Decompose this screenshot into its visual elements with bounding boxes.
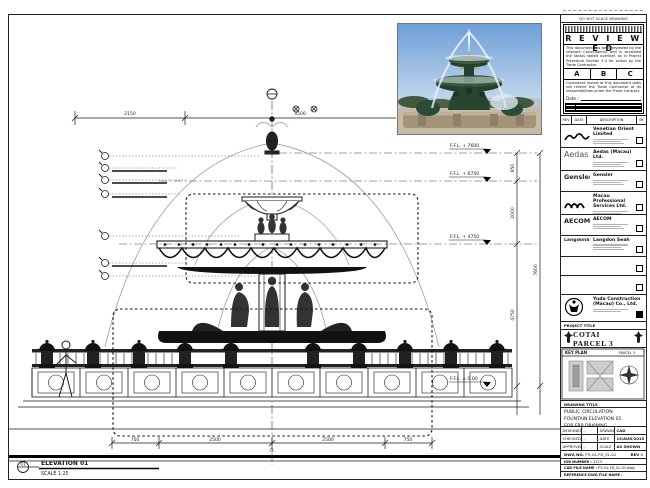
svg-text:2500: 2500 (209, 437, 221, 443)
svg-text:PARCEL 3: PARCEL 3 (619, 351, 635, 355)
cad-file-value: P3-GL-FD_EL-01.dwg (598, 466, 634, 470)
svg-text:F.F.L. + 6750: F.F.L. + 6750 (450, 171, 479, 177)
checked-label: CHECKED (561, 435, 582, 442)
stamp-date-row: Date : (564, 95, 643, 102)
view-title: 01 ELEVATION 01 SCALE 1:25 (18, 460, 160, 477)
svg-text:750: 750 (404, 437, 413, 443)
keynote-callouts (99, 150, 261, 280)
venetian-orient-logo-icon (564, 127, 590, 146)
date-col: DATE (572, 116, 587, 124)
cad-file-label: CAD FILE NAME : (564, 466, 597, 470)
svg-text:2150: 2150 (124, 111, 136, 117)
company-entry-client: Venetian Orient Limited (561, 125, 646, 148)
company-checkbox[interactable] (636, 225, 643, 232)
reference-dwg-row: REFERENCE DWG FILE NAME : (561, 472, 646, 477)
drawing-sheet: 2150 4500 2150 (0, 0, 650, 488)
reference-photo (397, 23, 542, 135)
company-checkbox[interactable] (636, 204, 643, 211)
yuda-construction-logo-icon (564, 297, 590, 321)
company-checkbox[interactable] (636, 246, 643, 253)
aecom-logo-icon: AECOM (564, 217, 590, 225)
reference-dwg-label: REFERENCE DWG FILE NAME : (564, 473, 623, 477)
company-checkbox[interactable] (636, 265, 643, 272)
fountain-base-band (158, 331, 386, 343)
company-entry-langdon-seah: LangdonSeah Langdon Seah (561, 236, 646, 257)
company-checkbox[interactable] (636, 311, 643, 318)
svg-text:F.F.L. ± 0.00: F.F.L. ± 0.00 (450, 376, 478, 382)
drawn-label: DRAWN (598, 427, 615, 434)
dwg-no-row: DWG NO. P3-GL-FD_EL-01 REV 0 (561, 451, 646, 459)
company-name: AECOM (593, 217, 643, 222)
fountain-photo-svg (398, 24, 541, 134)
drawing-title-line-1: PUBLIC CIRCULATION (564, 408, 643, 415)
scale-value: AS SHOWN (615, 443, 646, 450)
approved-value: - (582, 443, 598, 450)
svg-text:KEY PLAN: KEY PLAN (565, 350, 587, 355)
langdon-seah-logo-icon: LangdonSeah (564, 238, 590, 243)
date-label: DATE (598, 435, 615, 442)
company-checkbox[interactable] (636, 160, 643, 167)
company-checkbox[interactable] (636, 181, 643, 188)
svg-text:SCALE 1:25: SCALE 1:25 (41, 471, 69, 477)
rev-value: 0 (641, 452, 643, 457)
svg-text:F.F.L. + 4750: F.F.L. + 4750 (450, 234, 479, 240)
status-b[interactable]: B (591, 69, 618, 79)
mps-logo-icon (564, 194, 590, 213)
key-plan: KEY PLAN PARCEL 3 (561, 348, 646, 401)
stamp-date-line[interactable] (581, 96, 641, 101)
svg-text:CL: CL (269, 448, 275, 453)
right-dim-labels: 850 2000 4750 7600 (510, 164, 539, 321)
right-dimensions (514, 150, 543, 415)
rev-label: REV (631, 452, 640, 457)
drawing-title-line-2: FOUNTAIN ELEVATION 01 (564, 415, 643, 422)
designed-value: - (582, 427, 598, 434)
rev-col: REV (561, 116, 572, 124)
signature-fields: DESIGNED - DRAWN CAD CHECKED - DATE 13/A… (561, 427, 646, 451)
drawing-title-block: DRAWING TITLE PUBLIC CIRCULATION FOUNTAI… (561, 401, 646, 427)
svg-text:F.F.L. + 7600: F.F.L. + 7600 (450, 143, 479, 149)
svg-text:4500: 4500 (294, 111, 306, 117)
sheet-frame: 2150 4500 2150 (8, 14, 647, 480)
revision-header: REV DATE DESCRIPTION BY (561, 116, 646, 125)
svg-text:2500: 2500 (322, 437, 334, 443)
drawn-value: CAD (615, 427, 646, 434)
job-number-value: 3123 (593, 460, 602, 464)
company-name: Aedas (Macau) Ltd. (593, 150, 643, 160)
status-a[interactable]: A (564, 69, 591, 79)
svg-text:4750: 4750 (510, 309, 516, 321)
ground-heavy-line (9, 455, 561, 458)
project-title: COTAI PARCEL 3 (561, 330, 646, 348)
stamp-paragraph-1: This document has been reviewed by the r… (564, 45, 643, 68)
svg-text:ELEVATION 01: ELEVATION 01 (41, 460, 88, 467)
company-name: Langdon Seah (593, 238, 643, 243)
stamp-paragraph-2: Consultant review of this document does … (564, 80, 643, 95)
company-entry-mps: Macau Professional Services Ltd. (561, 192, 646, 215)
by-col: BY (637, 116, 646, 124)
project-emblem-right-icon (634, 329, 643, 348)
sheet-note: DO NOT SCALE DRAWING (561, 15, 646, 23)
company-entry-blank-1 (561, 257, 646, 276)
stamp-header-strip (565, 26, 642, 33)
dwg-no-label: DWG NO. (564, 452, 584, 457)
company-entry-aedas: Aedas Aedas (Macau) Ltd. (561, 148, 646, 171)
company-checkbox[interactable] (636, 137, 643, 144)
stamp-status-row: A B C (564, 68, 643, 80)
date-value: 13/AUG/2015 (615, 435, 646, 442)
company-name: Venetian Orient Limited (593, 127, 643, 137)
designed-label: DESIGNED (561, 427, 582, 434)
status-c[interactable]: C (617, 69, 643, 79)
job-number-label: JOB NUMBER : (564, 460, 592, 464)
bottom-dim-labels: 750 2500 2500 750 CL (131, 437, 413, 453)
project-name: COTAI PARCEL 3 (573, 330, 634, 348)
ground-lines (9, 401, 561, 461)
stamp-title: R E V I E W E D (564, 34, 643, 45)
title-block-sidebar: DO NOT SCALE DRAWING R E V I E W E D Thi… (560, 15, 646, 477)
sheet-edge-mark (563, 10, 643, 11)
scale-label: SCALE (598, 443, 615, 450)
svg-text:750: 750 (131, 437, 140, 443)
putti-figures (257, 214, 286, 234)
company-entry-aecom: AECOM AECOM (561, 215, 646, 236)
company-entry-contractor: Yuda Construction (Macau) Co., Ltd. (561, 295, 646, 322)
project-emblem-left-icon (564, 329, 573, 348)
stamp-date-label: Date : (566, 96, 579, 101)
company-entry-blank-2 (561, 276, 646, 295)
company-entry-gensler: Gensler Gensler (561, 171, 646, 192)
company-name: Gensler (593, 173, 643, 178)
review-stamp: R E V I E W E D This document has been r… (561, 23, 646, 116)
dwg-no-value: P3-GL-FD_EL-01 (585, 452, 616, 457)
checked-value: - (582, 435, 598, 442)
gensler-logo-icon: Gensler (564, 173, 590, 181)
svg-text:7600: 7600 (533, 264, 539, 276)
company-name: Yuda Construction (Macau) Co., Ltd. (593, 297, 643, 307)
description-col: DESCRIPTION (587, 116, 637, 124)
aedas-logo-icon: Aedas (564, 150, 590, 159)
svg-text:850: 850 (510, 164, 516, 173)
company-checkbox[interactable] (636, 284, 643, 291)
stamp-signoff-table (565, 103, 642, 112)
approved-label: APPROVED (561, 443, 582, 450)
fountain-elevation-drawing: 2150 4500 2150 (9, 15, 561, 477)
fountain (157, 89, 387, 465)
address-lines (593, 211, 643, 214)
svg-text:01: 01 (20, 462, 26, 467)
svg-text:2000: 2000 (510, 207, 516, 219)
